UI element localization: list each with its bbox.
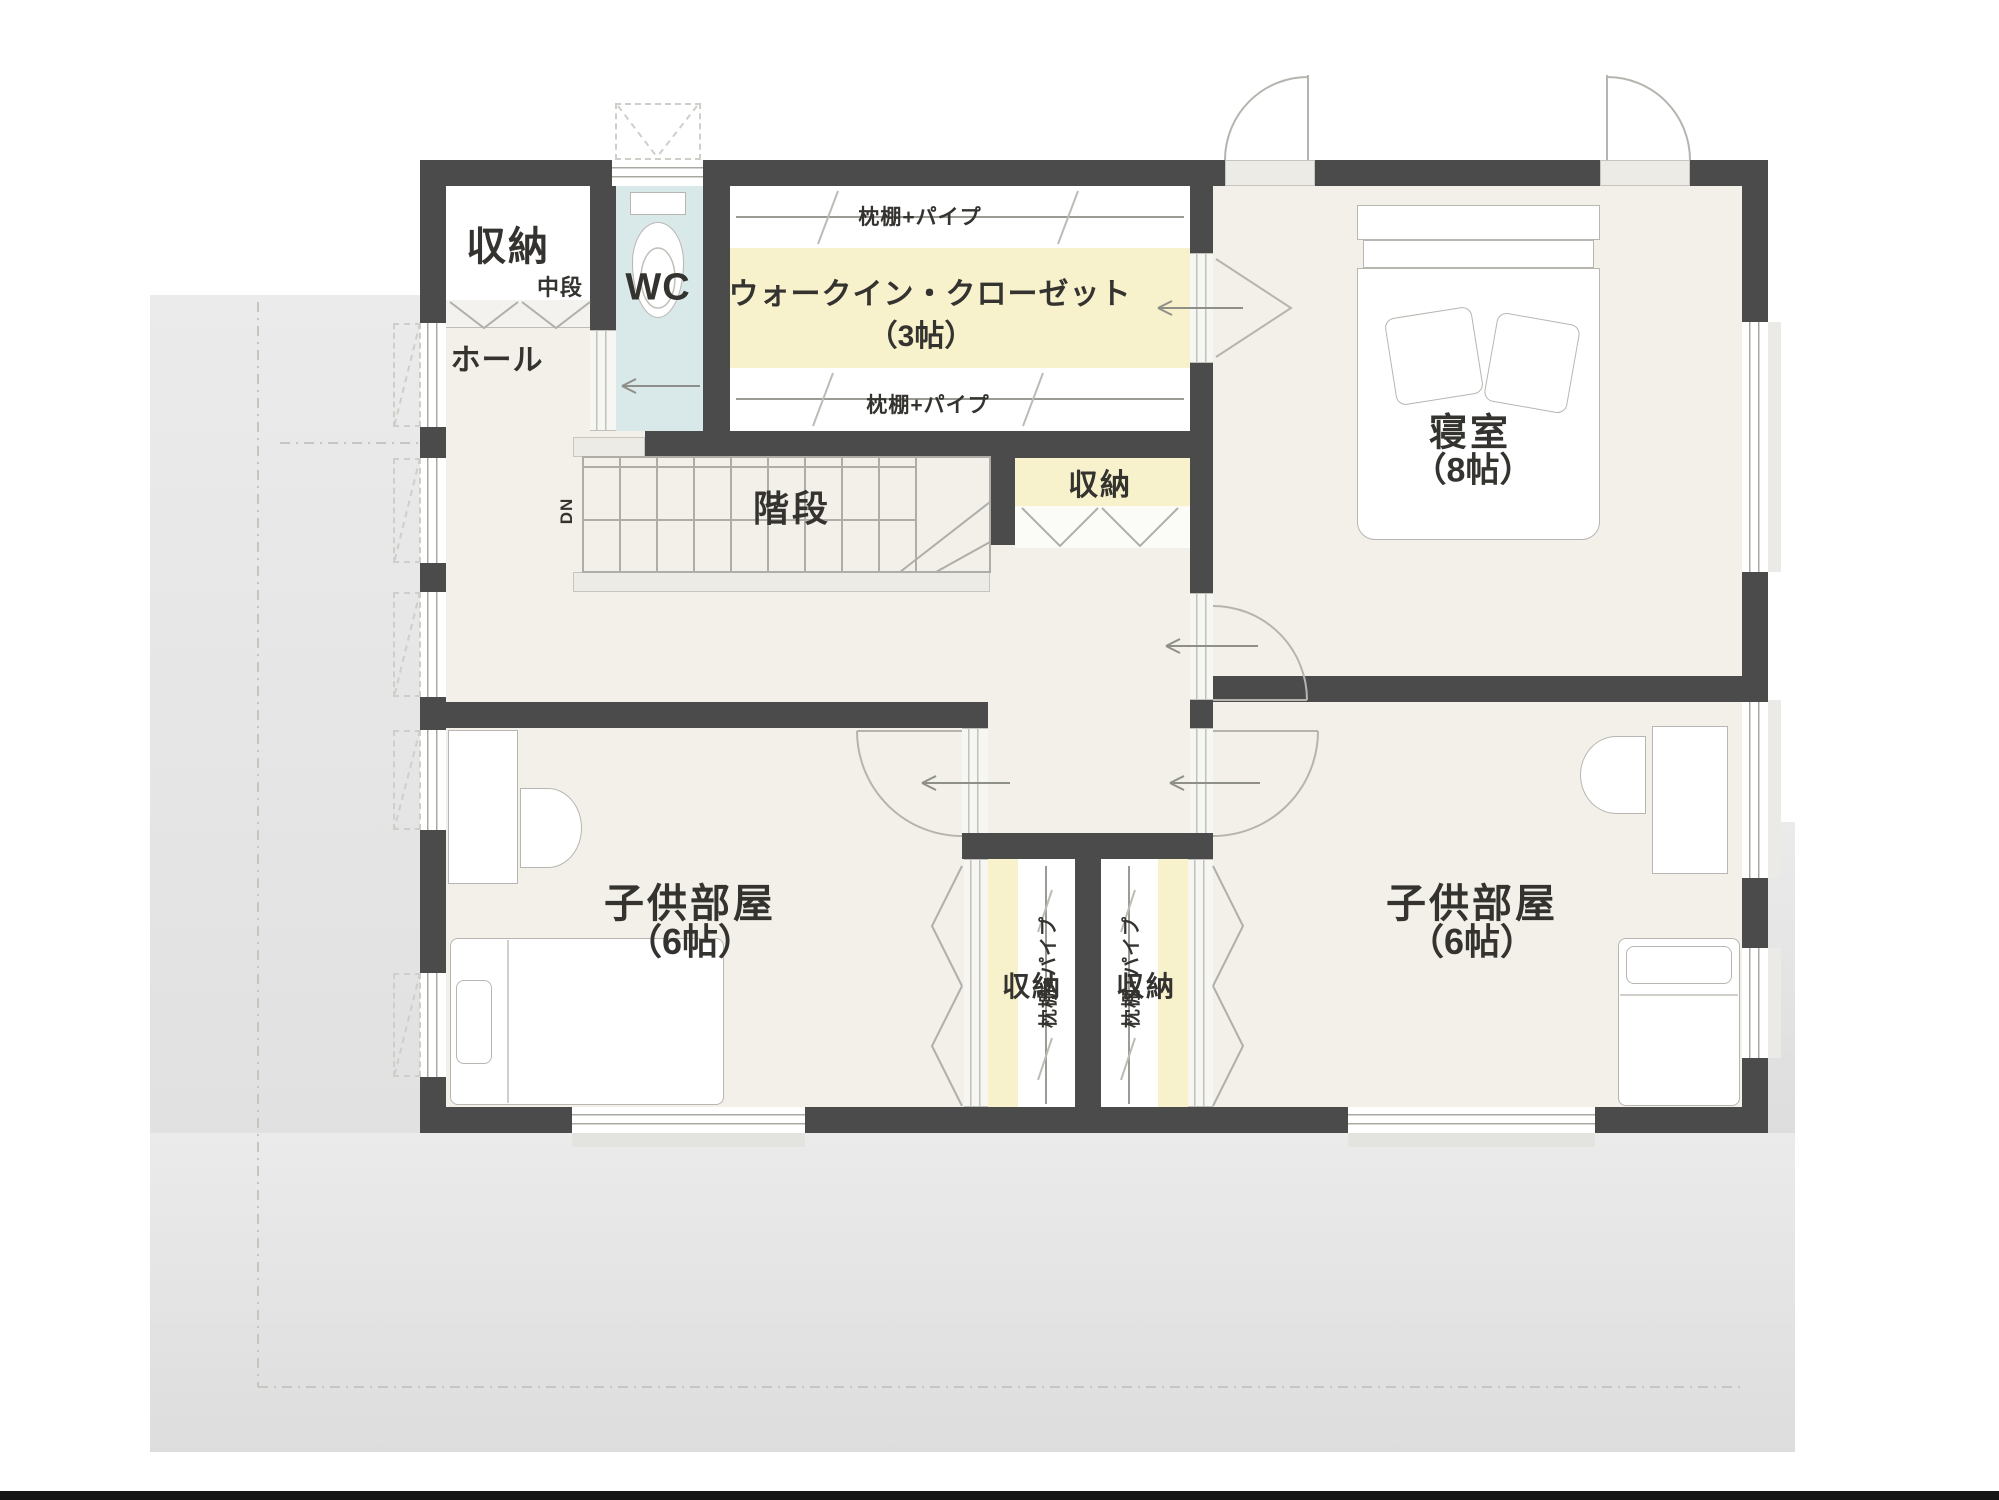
floor-plan: 収納 中段 WC ホール ウォークイン・クローゼット （3帖） 枕棚+パイプ 枕…: [0, 0, 1999, 1500]
room-label-wic: ウォークイン・クローゼット: [729, 269, 1132, 313]
door-swing-arcs: [857, 75, 1690, 836]
door-direction-arrows: [622, 301, 1260, 790]
stairs-dn-label: DN: [557, 498, 577, 525]
wic-shelf-label-bottom: 枕棚+パイプ: [866, 389, 989, 419]
midshelf-label: 中段: [537, 270, 583, 302]
room-label-hall: ホール: [451, 335, 544, 379]
room-size-child-right: （6帖）: [1408, 913, 1536, 965]
room-label-stairs: 階段: [753, 480, 831, 532]
room-size-child-left: （6帖）: [626, 913, 754, 965]
room-label-storage-mid: 収納: [1068, 460, 1132, 504]
room-label-storage-nw: 収納: [466, 214, 550, 272]
closet-right-shelf-label: 枕棚+パイプ: [1117, 916, 1144, 1028]
wic-shelf-label-top: 枕棚+パイプ: [858, 201, 981, 231]
room-label-wc: WC: [625, 267, 690, 310]
closet-left-shelf-label: 枕棚+パイプ: [1034, 916, 1061, 1028]
page-bottom-rule: [0, 1491, 1999, 1500]
plan-linework: [0, 0, 1999, 1500]
room-size-bedroom: （8帖）: [1413, 443, 1534, 492]
room-size-wic: （3帖）: [868, 311, 975, 355]
